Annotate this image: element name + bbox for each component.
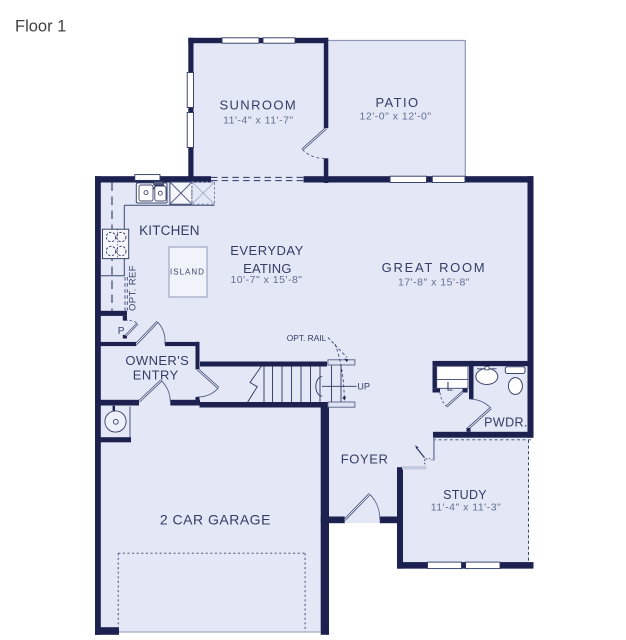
svg-text:PWDR.: PWDR. xyxy=(484,416,528,430)
svg-text:OWNER'S: OWNER'S xyxy=(125,353,189,368)
svg-text:L: L xyxy=(447,382,454,394)
svg-text:UP: UP xyxy=(357,381,370,391)
svg-text:2 CAR GARAGE: 2 CAR GARAGE xyxy=(160,511,271,527)
svg-text:STUDY: STUDY xyxy=(443,488,487,502)
svg-text:FOYER: FOYER xyxy=(341,451,389,466)
svg-text:11'-4" x 11'-7": 11'-4" x 11'-7" xyxy=(223,114,294,126)
svg-text:OPT. RAIL: OPT. RAIL xyxy=(287,333,327,343)
svg-text:P: P xyxy=(118,326,125,337)
svg-text:SUNROOM: SUNROOM xyxy=(219,98,297,113)
svg-text:ENTRY: ENTRY xyxy=(133,367,179,382)
svg-text:OPT. REF: OPT. REF xyxy=(128,265,139,311)
svg-text:17'-8" x 15'-8": 17'-8" x 15'-8" xyxy=(398,277,470,289)
svg-text:12'-0" x 12'-0": 12'-0" x 12'-0" xyxy=(360,111,432,123)
svg-text:EVERYDAY: EVERYDAY xyxy=(230,243,304,258)
svg-text:PATIO: PATIO xyxy=(375,95,419,110)
svg-text:Floor 1: Floor 1 xyxy=(15,18,66,36)
svg-text:ISLAND: ISLAND xyxy=(170,268,205,277)
svg-text:10'-7" x 15'-8": 10'-7" x 15'-8" xyxy=(230,274,302,286)
svg-text:GREAT ROOM: GREAT ROOM xyxy=(382,260,487,275)
svg-text:11'-4" x 11'-3": 11'-4" x 11'-3" xyxy=(431,501,502,513)
svg-text:KITCHEN: KITCHEN xyxy=(139,223,200,238)
